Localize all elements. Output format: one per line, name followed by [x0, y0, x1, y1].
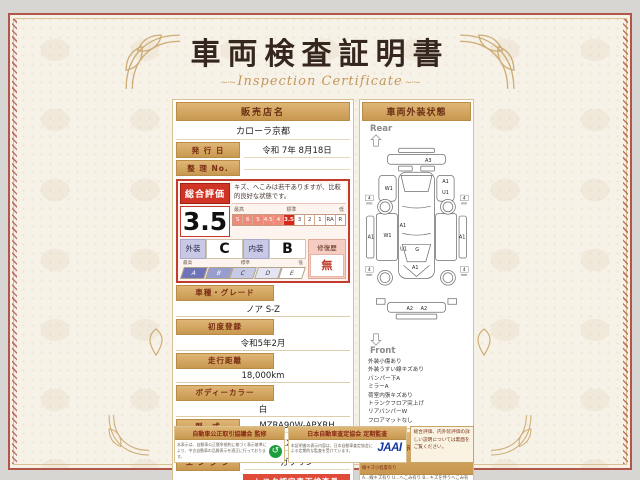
field-model-grade: 車種・グレード ノア S-Z: [176, 285, 350, 317]
condition-notes-list: 外装小傷あり外装うすい線キズありバンパー下AミラーA荷室内張キズありトランクフロ…: [362, 356, 471, 426]
rating-scale-cell: R: [335, 215, 345, 225]
rear-direction: Rear: [362, 121, 471, 134]
grade-scale-cell: E: [278, 267, 305, 279]
field-mileage-label: 走行距離: [176, 353, 274, 369]
damage-marker-w1: W1: [385, 186, 393, 192]
fair-trade-council-box: 自動車公正取引協議会 監修 本表示は、自動車公正競争規約に基づく表示基準により、…: [174, 426, 285, 463]
flourish-right-middle-icon: [472, 327, 496, 357]
dealer-header: 販売店名: [176, 102, 350, 121]
tread-value: 4: [368, 196, 371, 202]
tread-unit: mm: [461, 202, 467, 206]
damage-marker-a2: A2: [406, 306, 413, 312]
overall-rating-box: 総合評価 キズ、へこみは若干ありますが、比較的良好な状態です。 3.5 最高 標…: [176, 179, 350, 283]
damage-marker-a1: A1: [412, 265, 419, 271]
rating-comment: キズ、へこみは若干ありますが、比較的良好な状態です。: [232, 183, 346, 204]
exterior-grade-label: 外装: [180, 239, 206, 259]
flourish-left-middle-icon: [144, 327, 168, 357]
scale-label-low: 低: [339, 206, 344, 213]
tread-unit: mm: [366, 202, 372, 206]
field-mileage-value: 18,000km: [176, 369, 350, 383]
field-body-color-value: 白: [176, 401, 350, 417]
repair-history-box: 修復歴 無: [308, 239, 346, 279]
grade-scale-labels: 最高 標準 低: [180, 259, 306, 266]
damage-marker-a2: A2: [421, 306, 428, 312]
scale-label-high: 最高: [234, 206, 244, 213]
jaai-audit-box: 日本自動車査定協会 定期監査 本証明書の表示内容は、日本自動車査定協会による定期…: [288, 426, 407, 463]
legend-line: A…線キズ有り U…へこみ有り B…キズを伴うへこみ有り P…塗装有り W…補修…: [362, 476, 471, 480]
damage-marker-w1: W1: [384, 233, 392, 239]
condition-note: ミラーA: [368, 383, 469, 391]
certificate-photo: 車両検査証明書 ~·~ Inspection Certificate ~·~ 販…: [0, 0, 640, 480]
rear-arrow-icon: [370, 134, 382, 147]
rating-scale-labels: 最高 標準 低: [232, 206, 346, 214]
damage-marker-a1: A1: [400, 223, 407, 229]
damage-marker-a1: A1: [459, 234, 466, 240]
rating-scale-cell: 4.5: [263, 215, 273, 225]
grade-scale-cell: A: [180, 267, 207, 279]
condition-note: 荷室内張キズあり: [368, 392, 469, 400]
page-title: 車両検査証明書: [10, 29, 630, 73]
front-arrow-icon: [370, 333, 382, 346]
interior-grade-value: B: [269, 239, 306, 259]
fair-trade-body: 本表示は、自動車公正競争規約に基づく表示基準により、中古自動車の品質表示を適正に…: [177, 442, 267, 460]
rating-scale-cell: 1: [314, 215, 324, 225]
car-damage-diagram: 4mm4mm4mm4mm A3A1U1W1A1W1A1A1U1GA1A2A2: [364, 147, 469, 332]
condition-note: トランクフロア突上げ: [368, 400, 469, 408]
scale-label-mid: 標準: [286, 206, 296, 213]
fair-trade-title: 自動車公正取引協議会 監修: [175, 427, 284, 440]
damage-marker-a1: A1: [368, 234, 375, 240]
condition-note: 外装うすい線キズあり: [368, 366, 469, 374]
tread-value: 4: [368, 267, 371, 273]
field-body-color: ボディーカラー 白: [176, 385, 350, 417]
field-mileage: 走行距離 18,000km: [176, 353, 350, 383]
tread-unit: mm: [461, 273, 467, 277]
damage-marker-g: G: [415, 247, 419, 253]
damage-marker-u1: U1: [400, 247, 407, 253]
grade-scale-cell: C: [229, 267, 256, 279]
issue-date-label: 発 行 日: [176, 142, 240, 158]
overall-rating-header: 総合評価: [180, 183, 230, 204]
fair-trade-mark-icon: ↺: [269, 445, 282, 458]
flourish-bottom-left-icon: [106, 412, 152, 458]
field-first-registration-label: 初度登録: [176, 319, 274, 335]
condition-note: バンパー下A: [368, 375, 469, 383]
rating-scale-cell: 4: [273, 215, 283, 225]
certificate-sheet: 車両検査証明書 ~·~ Inspection Certificate ~·~ 販…: [8, 13, 632, 470]
field-model-grade-value: ノア S-Z: [176, 301, 350, 317]
condition-note: リアバンパーW: [368, 408, 469, 416]
jaai-body: 本証明書の表示内容は、日本自動車査定協会による定期的な監査を受けています。: [291, 443, 375, 455]
condition-note: フロアマットなし: [368, 417, 469, 425]
rating-scale-cell: 2: [304, 215, 314, 225]
grade-scale-cell: D: [254, 267, 281, 279]
rating-scale-cell: S: [233, 215, 242, 225]
rating-scale: 最高 標準 低 S654.543.5321RAR: [232, 206, 346, 237]
rating-scale-cell: 5: [252, 215, 262, 225]
field-first-registration-value: 令和5年2月: [176, 335, 350, 351]
condition-note: 外装小傷あり: [368, 358, 469, 366]
damage-marker-a1: A1: [442, 179, 449, 185]
ref-no-value: [244, 167, 350, 170]
grade-scale-cell: B: [205, 267, 232, 279]
subtitle-left-flourish: ~·~: [221, 78, 238, 88]
damage-marker-a3: A3: [425, 158, 432, 164]
jaai-title: 日本自動車査定協会 定期監査: [289, 427, 406, 440]
dealer-name: カローラ京都: [176, 121, 350, 140]
tread-value: 4: [463, 267, 466, 273]
exterior-condition-panel: 車両外装状態 Rear: [359, 99, 474, 429]
tread-value: 4: [463, 196, 466, 202]
flourish-bottom-right-icon: [488, 412, 534, 458]
grade-scale-cells: ABCDE: [180, 266, 306, 279]
repair-history-label: 修復歴: [309, 240, 345, 253]
field-body-color-label: ボディーカラー: [176, 385, 274, 401]
issue-date-value: 令和 7年 8月18日: [244, 143, 350, 158]
rating-scale-cell: RA: [325, 215, 335, 225]
front-label: Front: [370, 346, 395, 356]
jaai-logo: JAAI: [377, 442, 403, 454]
certified-inspector-badge: トヨタ認定車両検査員: [243, 474, 350, 480]
rating-scale-cell: 3: [294, 215, 304, 225]
grade-label-high: 最高: [183, 260, 192, 266]
interior-grade-label: 内装: [243, 239, 269, 259]
rating-score: 3.5: [180, 206, 230, 237]
vehicle-info-panel: 販売店名 カローラ京都 発 行 日 令和 7年 8月18日 整 理 No. 総合…: [172, 99, 354, 480]
field-first-registration: 初度登録 令和5年2月: [176, 319, 350, 351]
exterior-panel-header: 車両外装状態: [362, 102, 471, 121]
rating-scale-cell: 3.5: [283, 215, 294, 225]
rear-label: Rear: [370, 124, 392, 134]
grade-label-mid: 標準: [241, 260, 250, 266]
field-model-grade-label: 車種・グレード: [176, 285, 274, 301]
exterior-grade-value: C: [206, 239, 243, 259]
certifier-row: TOYOTA トヨタ認定車両検査員 XXXXXX: [176, 474, 350, 480]
grade-label-low: 低: [298, 260, 303, 266]
rating-scale-cells: S654.543.5321RAR: [232, 214, 346, 226]
repair-history-value: 無: [310, 254, 344, 277]
page-subtitle: ~·~ Inspection Certificate ~·~: [10, 74, 630, 89]
see-reverse-note: 総合評価、内外装評価の詳しい説明については裏面をご覧ください。: [410, 426, 474, 463]
subtitle-right-flourish: ~·~: [403, 78, 420, 88]
tread-unit: mm: [366, 273, 372, 277]
legend-lines: A…線キズ有り U…へこみ有り B…キズを伴うへこみ有り P…塗装有り W…補修…: [360, 475, 473, 480]
damage-marker-u1: U1: [442, 190, 449, 196]
rating-scale-cell: 6: [242, 215, 252, 225]
ref-no-label: 整 理 No.: [176, 160, 240, 176]
